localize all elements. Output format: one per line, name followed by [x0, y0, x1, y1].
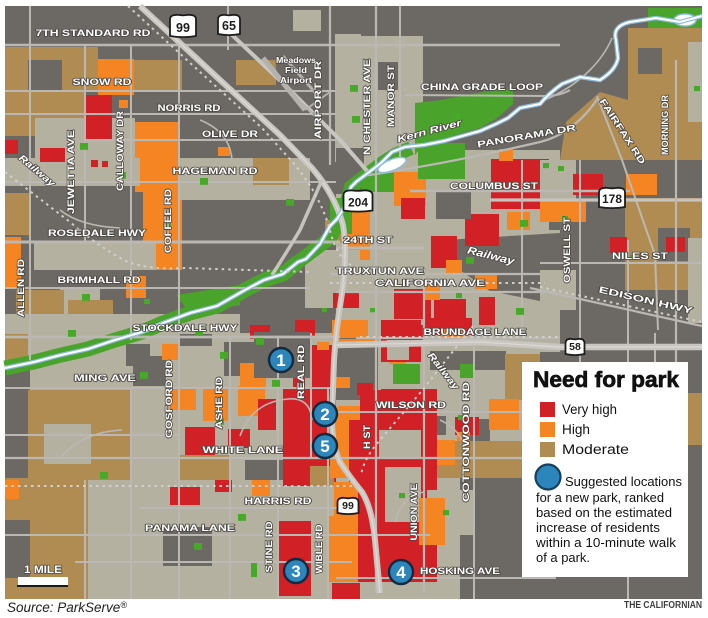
svg-text:Suggested locations: Suggested locations: [565, 474, 682, 489]
svg-text:OSWELL ST: OSWELL ST: [562, 216, 572, 283]
svg-text:WHITE LANE: WHITE LANE: [203, 445, 284, 455]
svg-text:ROSEDALE HWY: ROSEDALE HWY: [48, 228, 146, 238]
svg-text:Very high: Very high: [562, 402, 617, 417]
svg-text:MING AVE: MING AVE: [74, 373, 136, 383]
svg-text:STINE RD: STINE RD: [264, 521, 274, 573]
svg-text:AIRPORT DR: AIRPORT DR: [313, 60, 323, 139]
svg-text:UNION AVE: UNION AVE: [409, 484, 419, 541]
svg-text:WIBLE RD: WIBLE RD: [314, 524, 324, 574]
svg-text:4: 4: [396, 563, 406, 582]
svg-text:NILES ST: NILES ST: [612, 251, 669, 261]
svg-text:Source: ParkServe®: Source: ParkServe®: [7, 600, 127, 615]
svg-text:HOSKING AVE: HOSKING AVE: [420, 566, 500, 576]
svg-text:99: 99: [176, 21, 190, 35]
svg-text:ASHE RD: ASHE RD: [214, 376, 224, 429]
svg-text:COTTONWOOD RD: COTTONWOOD RD: [461, 381, 471, 502]
svg-text:THE CALIFORNIAN: THE CALIFORNIAN: [624, 600, 702, 611]
svg-text:PANAMA LANE: PANAMA LANE: [145, 523, 235, 533]
svg-text:7TH STANDARD RD: 7TH STANDARD RD: [36, 28, 152, 38]
svg-text:65: 65: [222, 19, 236, 33]
svg-text:BRUNDAGE LANE: BRUNDAGE LANE: [424, 327, 527, 337]
svg-text:Airport: Airport: [280, 75, 312, 85]
svg-text:GOSFORD RD: GOSFORD RD: [164, 359, 174, 438]
svg-text:58: 58: [569, 341, 581, 353]
svg-text:3: 3: [291, 562, 300, 581]
svg-text:MORNING DR: MORNING DR: [660, 94, 670, 155]
svg-text:5: 5: [320, 437, 329, 456]
svg-text:CALLOWAY DR: CALLOWAY DR: [115, 110, 125, 191]
svg-text:REAL RD: REAL RD: [296, 344, 306, 399]
svg-text:H ST: H ST: [362, 424, 372, 449]
svg-text:178: 178: [602, 192, 622, 206]
svg-text:SNOW RD: SNOW RD: [73, 77, 133, 87]
svg-text:Need for park: Need for park: [533, 367, 680, 392]
svg-text:1 MILE: 1 MILE: [24, 564, 62, 576]
svg-text:ALLEN RD: ALLEN RD: [16, 258, 26, 317]
svg-text:24TH ST: 24TH ST: [344, 235, 394, 245]
svg-text:for a new park, ranked: for a new park, ranked: [536, 490, 664, 505]
svg-text:COFFEE RD: COFFEE RD: [163, 188, 173, 253]
svg-text:TRUXTUN AVE: TRUXTUN AVE: [336, 266, 424, 276]
svg-text:204: 204: [348, 195, 368, 209]
svg-text:WILSON RD: WILSON RD: [376, 400, 447, 410]
svg-text:HAGEMAN RD: HAGEMAN RD: [173, 166, 259, 176]
svg-text:CHINA GRADE LOOP: CHINA GRADE LOOP: [421, 82, 543, 92]
svg-text:High: High: [562, 422, 590, 437]
svg-text:N CHESTER AVE: N CHESTER AVE: [362, 59, 372, 155]
svg-text:99: 99: [342, 500, 354, 512]
svg-text:STOCKDALE HWY: STOCKDALE HWY: [133, 323, 238, 333]
svg-text:CALIFORNIA AVE: CALIFORNIA AVE: [375, 278, 485, 288]
svg-text:MANOR ST: MANOR ST: [386, 64, 396, 127]
svg-text:1: 1: [276, 351, 285, 370]
svg-text:JEWETTA AVE: JEWETTA AVE: [66, 130, 76, 214]
svg-text:Meadows: Meadows: [276, 55, 316, 65]
svg-text:HARRIS RD: HARRIS RD: [245, 496, 313, 506]
svg-text:Moderate: Moderate: [562, 442, 629, 457]
svg-text:within a 10-minute walk: within a 10-minute walk: [535, 535, 676, 550]
svg-text:Field: Field: [285, 65, 307, 75]
svg-text:COLUMBUS ST: COLUMBUS ST: [450, 181, 539, 191]
svg-text:NORRIS RD: NORRIS RD: [158, 103, 222, 113]
svg-text:BRIMHALL RD: BRIMHALL RD: [58, 275, 142, 285]
svg-text:OLIVE DR: OLIVE DR: [202, 129, 259, 139]
svg-text:based on the estimated: based on the estimated: [536, 505, 672, 520]
svg-text:2: 2: [320, 405, 329, 424]
svg-text:of a park.: of a park.: [536, 550, 590, 565]
svg-text:increase of residents: increase of residents: [536, 520, 660, 535]
